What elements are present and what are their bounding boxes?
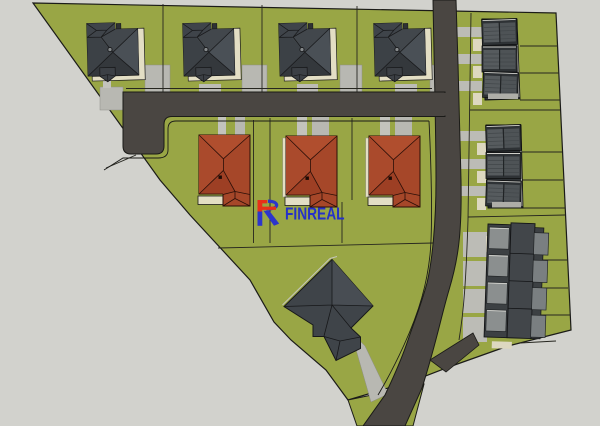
svg-text:FINREAL: FINREAL — [285, 204, 345, 224]
